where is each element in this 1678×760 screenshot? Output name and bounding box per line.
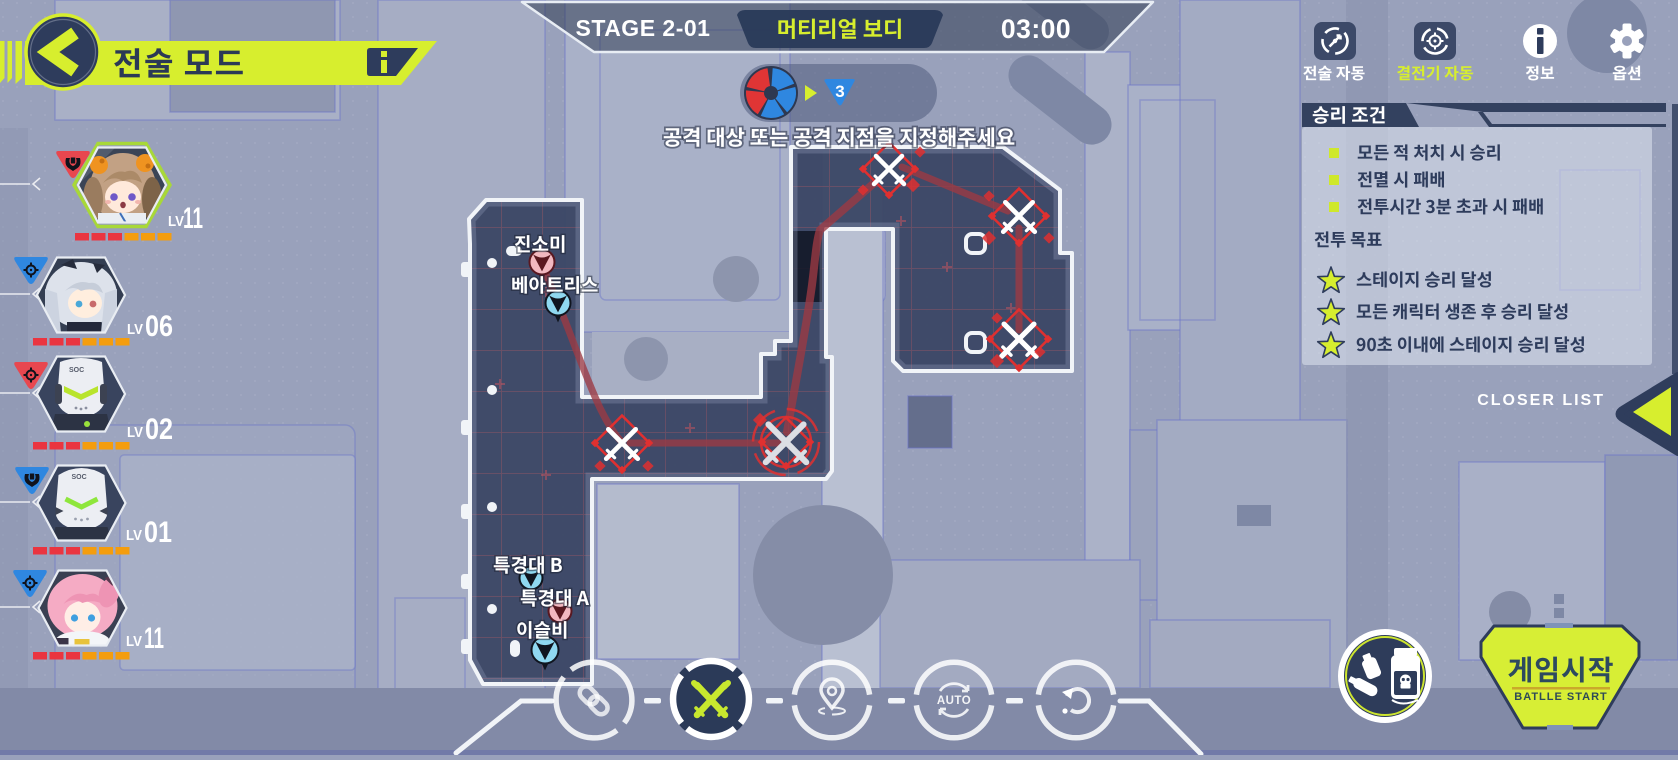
svg-text:스테이지 승리 달성: 스테이지 승리 달성 xyxy=(1356,267,1493,292)
svg-text:LV: LV xyxy=(126,633,142,650)
svg-text:03:00: 03:00 xyxy=(1001,14,1071,44)
svg-text:모든 캐릭터 생존 후 승리 달성: 모든 캐릭터 생존 후 승리 달성 xyxy=(1356,299,1569,324)
svg-text:3: 3 xyxy=(835,82,844,101)
svg-text:01: 01 xyxy=(144,516,172,549)
svg-text:이슬비: 이슬비 xyxy=(516,616,568,643)
svg-text:전멸 시 패배: 전멸 시 패배 xyxy=(1357,167,1445,192)
svg-text:02: 02 xyxy=(145,413,173,446)
svg-text:전투 목표: 전투 목표 xyxy=(1314,227,1382,252)
svg-text:정보: 정보 xyxy=(1525,60,1555,84)
svg-text:BATLLE START: BATLLE START xyxy=(1514,691,1607,703)
svg-text:베아트리스: 베아트리스 xyxy=(511,271,598,298)
svg-text:90초 이내에 스테이지 승리 달성: 90초 이내에 스테이지 승리 달성 xyxy=(1356,332,1586,357)
svg-text:특경대 B: 특경대 B xyxy=(493,551,563,578)
svg-text:LV: LV xyxy=(127,424,143,441)
svg-text:11: 11 xyxy=(144,622,164,655)
svg-text:게임시작: 게임시작 xyxy=(1507,649,1614,689)
svg-text:결전기 자동: 결전기 자동 xyxy=(1396,60,1474,84)
svg-text:진소미: 진소미 xyxy=(514,230,566,257)
svg-text:LV: LV xyxy=(127,321,143,338)
svg-text:LV: LV xyxy=(126,527,142,544)
svg-text:모든 적 처치 시 승리: 모든 적 처치 시 승리 xyxy=(1357,140,1502,165)
svg-text:특경대 A: 특경대 A xyxy=(520,584,590,611)
svg-text:전투시간 3분 초과 시 패배: 전투시간 3분 초과 시 패배 xyxy=(1357,194,1544,219)
svg-text:LV: LV xyxy=(168,213,184,230)
svg-text:STAGE 2-01: STAGE 2-01 xyxy=(576,15,711,41)
svg-text:승리 조건: 승리 조건 xyxy=(1312,101,1386,128)
svg-text:CLOSER LIST: CLOSER LIST xyxy=(1477,392,1605,409)
svg-text:공격 대상 또는 공격 지점을 지정해주세요: 공격 대상 또는 공격 지점을 지정해주세요 xyxy=(663,122,1015,152)
svg-text:옵션: 옵션 xyxy=(1612,60,1641,84)
svg-text:AUTO: AUTO xyxy=(937,695,971,707)
svg-text:전술 모드: 전술 모드 xyxy=(113,39,246,85)
svg-text:06: 06 xyxy=(145,310,173,343)
svg-text:전술 자동: 전술 자동 xyxy=(1303,60,1366,84)
svg-text:머티리얼 보디: 머티리얼 보디 xyxy=(777,12,903,44)
svg-text:11: 11 xyxy=(183,202,203,235)
